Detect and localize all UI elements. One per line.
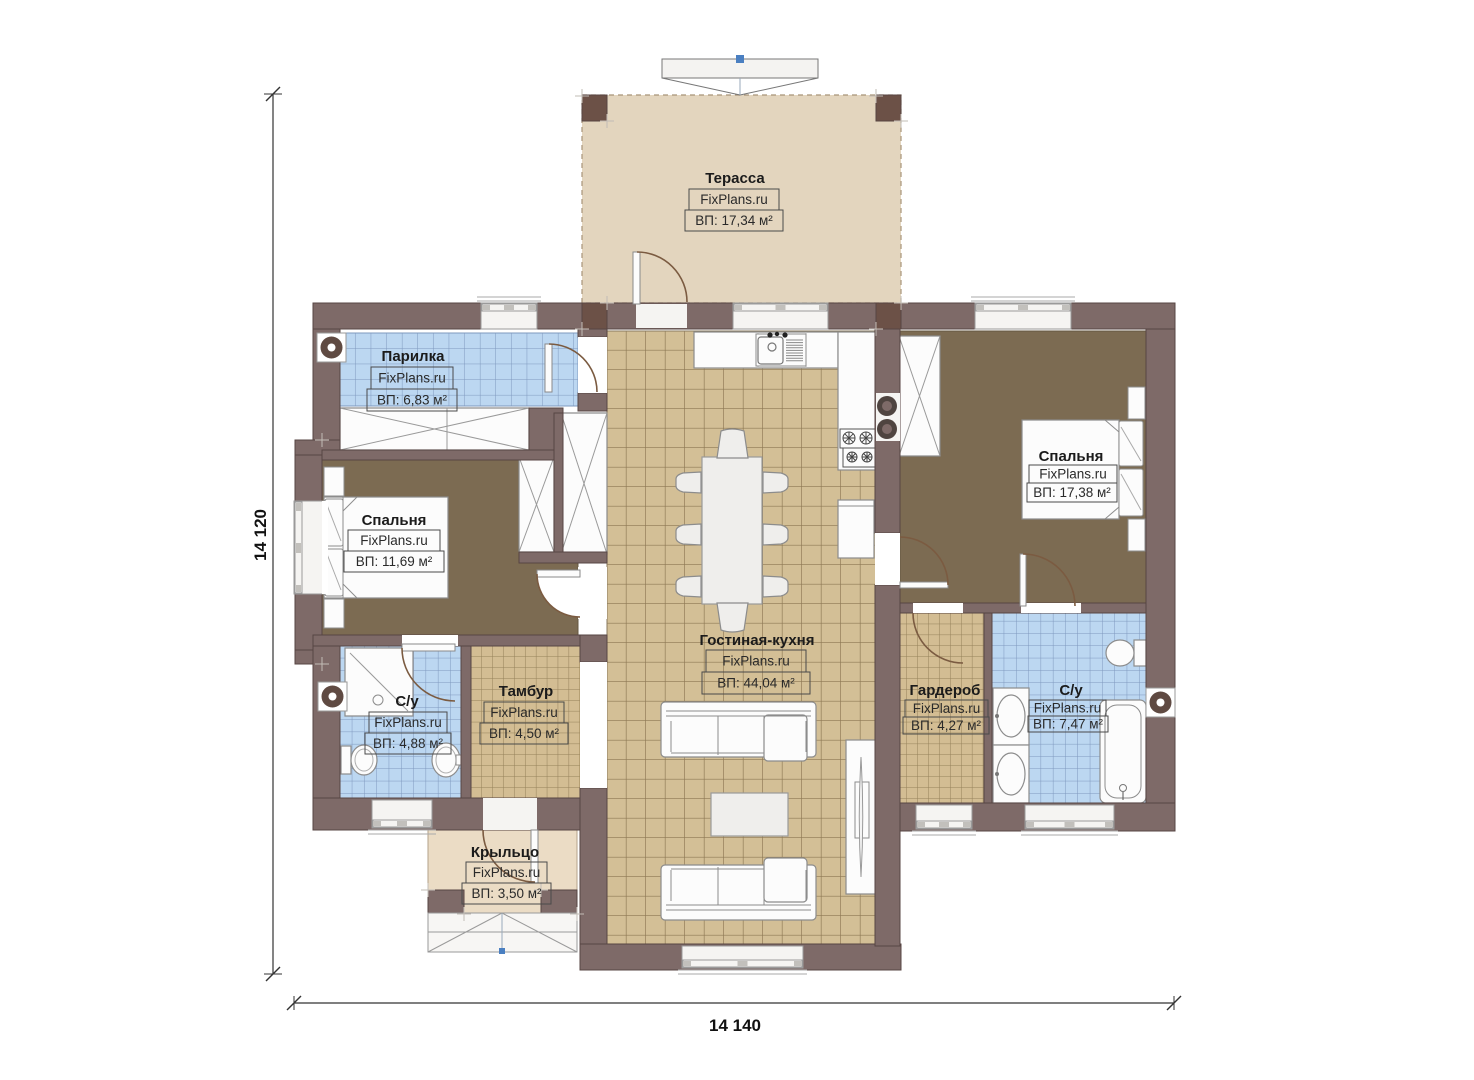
svg-text:14 120: 14 120 <box>251 509 270 561</box>
svg-text:FixPlans.ru: FixPlans.ru <box>913 701 981 716</box>
svg-text:FixPlans.ru: FixPlans.ru <box>378 371 446 386</box>
svg-text:ВП: 4,50 м²: ВП: 4,50 м² <box>489 726 560 741</box>
svg-text:ВП: 11,69 м²: ВП: 11,69 м² <box>356 554 433 569</box>
svg-text:Спальня: Спальня <box>362 512 427 529</box>
svg-text:ВП: 44,04 м²: ВП: 44,04 м² <box>717 676 795 691</box>
svg-text:ВП: 4,88 м²: ВП: 4,88 м² <box>373 736 444 751</box>
svg-text:Гардероб: Гардероб <box>910 682 981 699</box>
svg-text:FixPlans.ru: FixPlans.ru <box>1034 701 1102 716</box>
svg-text:ВП: 4,27 м²: ВП: 4,27 м² <box>911 718 982 733</box>
svg-text:ВП: 7,47 м²: ВП: 7,47 м² <box>1033 717 1104 732</box>
svg-text:14 140: 14 140 <box>709 1016 761 1035</box>
svg-text:FixPlans.ru: FixPlans.ru <box>360 533 428 548</box>
svg-text:Терасса: Терасса <box>705 170 765 187</box>
svg-text:FixPlans.ru: FixPlans.ru <box>722 654 790 669</box>
svg-text:FixPlans.ru: FixPlans.ru <box>700 192 768 207</box>
svg-text:С/у: С/у <box>1059 682 1083 699</box>
svg-text:Гостиная-кухня: Гостиная-кухня <box>700 632 815 649</box>
svg-text:Тамбур: Тамбур <box>499 683 553 700</box>
svg-text:ВП: 3,50 м²: ВП: 3,50 м² <box>471 886 542 901</box>
svg-text:ВП: 17,34 м²: ВП: 17,34 м² <box>695 213 773 228</box>
svg-text:Парилка: Парилка <box>382 348 446 365</box>
svg-text:FixPlans.ru: FixPlans.ru <box>490 705 558 720</box>
svg-text:ВП: 6,83 м²: ВП: 6,83 м² <box>377 393 448 408</box>
svg-text:С/у: С/у <box>395 693 419 710</box>
svg-text:ВП: 17,38 м²: ВП: 17,38 м² <box>1033 485 1111 500</box>
svg-text:Крыльцо: Крыльцо <box>471 844 539 861</box>
svg-text:FixPlans.ru: FixPlans.ru <box>374 715 442 730</box>
svg-text:FixPlans.ru: FixPlans.ru <box>473 865 541 880</box>
svg-text:FixPlans.ru: FixPlans.ru <box>1039 467 1107 482</box>
svg-text:Спальня: Спальня <box>1039 448 1104 465</box>
